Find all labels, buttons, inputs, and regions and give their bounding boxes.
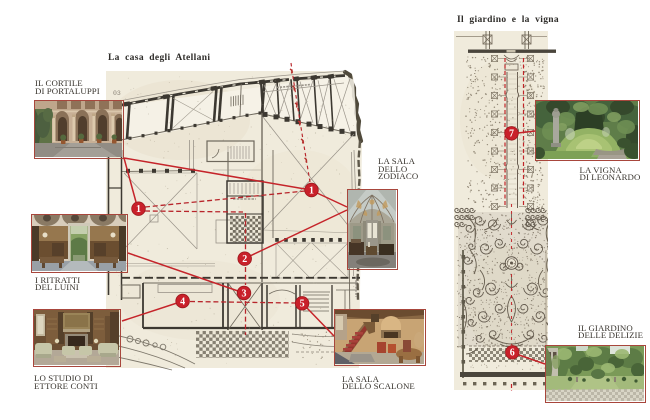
svg-text:7: 7 [509,129,514,140]
svg-text:1: 1 [136,204,141,215]
svg-text:1: 1 [309,185,314,196]
svg-text:6: 6 [510,348,515,359]
svg-text:5: 5 [300,299,305,310]
svg-text:3: 3 [242,288,247,299]
svg-text:4: 4 [180,296,185,307]
svg-text:2: 2 [242,254,247,265]
